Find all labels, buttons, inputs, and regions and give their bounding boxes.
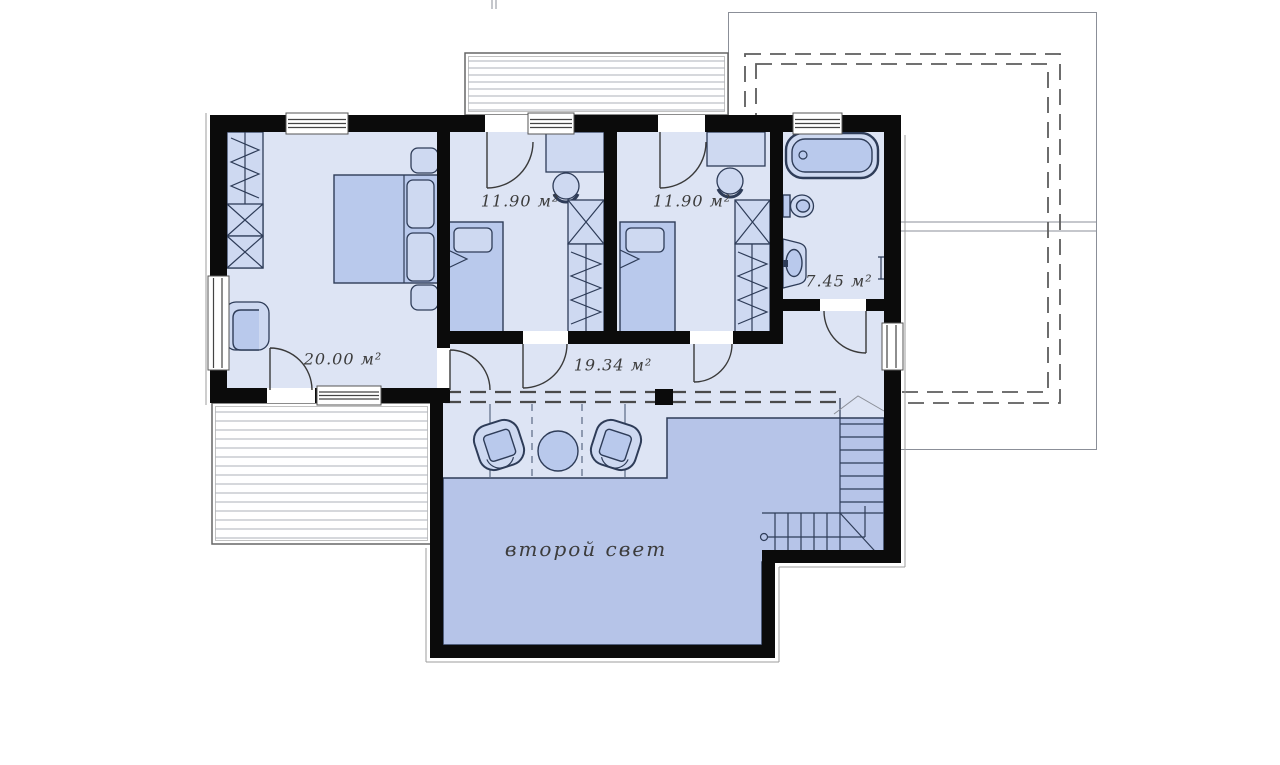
nightstand [411,148,438,173]
wall-partition-bathroom [770,132,783,344]
wall-void-west [430,388,443,658]
room-area-label-bedroom3: 11.90 м² [653,192,732,211]
room-area-label-hall: 19.34 м² [574,356,653,375]
desk [707,132,765,166]
window-master-bottom [317,386,381,405]
wardrobe [568,200,604,333]
wardrobe [735,200,770,333]
second-light-label: второй свет [505,537,667,561]
wall-step-vertical [762,563,775,658]
wall-step-horizontal [762,550,901,563]
single-bed [448,222,503,332]
wall-partition-bedrooms [604,132,617,344]
double-bed [334,175,438,283]
window-left-wall [208,276,229,370]
window-bathroom-top [793,113,842,134]
round-table [538,431,578,471]
nightstand [411,285,438,310]
armchair [225,302,269,350]
axis-tick [492,0,496,9]
floor-plan-drawing [0,0,1280,765]
wardrobe [227,132,263,268]
window-right-wall [882,323,903,370]
toilet-icon [783,195,814,217]
room-area-label-bathroom: 7.45 м² [805,272,872,291]
desk-chair [717,168,743,194]
wall-bottom [430,645,775,658]
room-area-label-master: 20.00 м² [304,350,383,369]
bathtub-icon [786,133,878,178]
window-master-top [286,113,348,134]
single-bed [620,222,675,332]
desk [546,132,604,172]
roof-ridge-line [901,222,1096,231]
floor-plan-page: 20.00 м² 11.90 м² 11.90 м² 7.45 м² 19.34… [0,0,1280,765]
terrace-deck [212,403,431,544]
column [655,389,673,405]
window-bedroom2-top [528,113,574,134]
balcony-deck-top [465,53,728,115]
sink-icon [783,239,806,288]
room-area-label-bedroom2: 11.90 м² [481,192,560,211]
